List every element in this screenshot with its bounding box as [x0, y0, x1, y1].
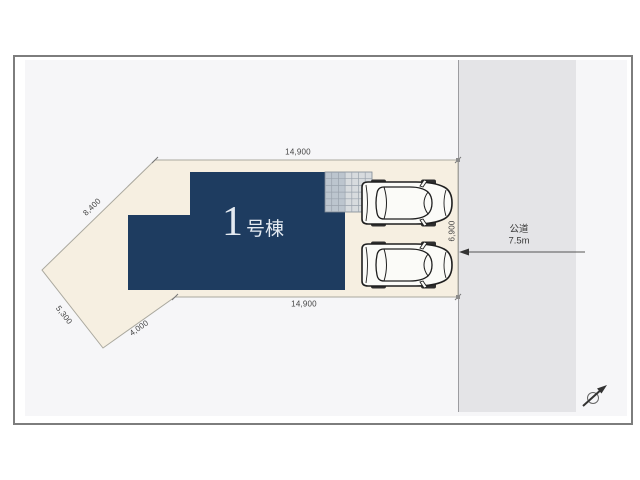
- site-plan-drawing: [15, 57, 631, 423]
- car-top-view-icon: [362, 180, 452, 227]
- road-type-label: 公道: [509, 221, 528, 235]
- road-width-label: 7.5m: [508, 236, 529, 247]
- dimension-right-frontage: 6,900: [448, 220, 457, 241]
- plan-frame: 1号棟 14,900 14,900 8,400 5,300 4,000 6,90…: [13, 55, 633, 425]
- road-width-dimension-line: [459, 249, 585, 256]
- dimension-bottom-width: 14,900: [291, 300, 317, 309]
- car-top-view-icon: [362, 242, 452, 289]
- corner-marker-bottom: [456, 295, 460, 299]
- corner-marker-top: [456, 158, 460, 162]
- site-plan-page: 1号棟 14,900 14,900 8,400 5,300 4,000 6,90…: [0, 0, 640, 480]
- dimension-top-width: 14,900: [285, 148, 311, 157]
- north-arrow-icon: [583, 385, 607, 406]
